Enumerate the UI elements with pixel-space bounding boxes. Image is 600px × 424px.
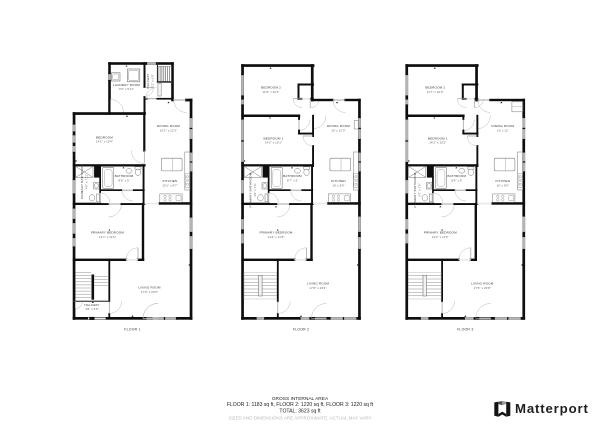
svg-text:DINING ROOM: DINING ROOM (327, 124, 350, 128)
svg-text:10'1" x 9'7": 10'1" x 9'7" (162, 184, 177, 188)
svg-text:KITCHEN: KITCHEN (163, 179, 178, 183)
svg-text:LIVING ROOM: LIVING ROOM (307, 282, 330, 286)
svg-text:Matterport: Matterport (515, 401, 589, 416)
svg-text:FLOOR 1: FLOOR 1 (124, 328, 140, 332)
svg-text:LIVING ROOM: LIVING ROOM (138, 286, 161, 290)
svg-text:HALLWAY: HALLWAY (84, 303, 99, 307)
svg-text:BATHROOM: BATHROOM (447, 174, 466, 178)
svg-text:11'9" x 10'4": 11'9" x 10'4" (263, 90, 280, 94)
svg-text:HALLWAY: HALLWAY (146, 73, 150, 88)
svg-text:BEDROOM 1: BEDROOM 1 (428, 136, 448, 140)
svg-text:10'1" x 12'3": 10'1" x 12'3" (160, 129, 177, 133)
svg-text:14'2" x 10'1": 14'2" x 10'1" (265, 141, 282, 145)
svg-text:4'9" x 7'9": 4'9" x 7'9" (253, 183, 257, 197)
svg-text:BEDROOM 2: BEDROOM 2 (261, 86, 281, 90)
svg-text:BATHROOM: BATHROOM (115, 174, 134, 178)
svg-text:PRIMARY BEDROOM: PRIMARY BEDROOM (259, 231, 292, 235)
svg-text:FLOOR 2: FLOOR 2 (293, 328, 309, 332)
svg-text:GROSS INTERNAL AREA: GROSS INTERNAL AREA (272, 396, 329, 402)
svg-text:8'6" x 5': 8'6" x 5' (451, 179, 462, 183)
svg-text:FLOOR 1: 1183 sq ft, FLOOR 2:: FLOOR 1: 1183 sq ft, FLOOR 2: 1220 sq ft… (227, 402, 374, 408)
svg-text:17'6" x 23'8": 17'6" x 23'8" (474, 286, 491, 290)
svg-text:4'7" x 7'9": 4'7" x 7'9" (417, 183, 421, 197)
svg-text:8'7" x 5': 8'7" x 5' (287, 179, 298, 183)
svg-text:17'6" x 23'4": 17'6" x 23'4" (309, 286, 326, 290)
svg-text:PRIMARY BATHROOM: PRIMARY BATHROOM (80, 164, 84, 199)
svg-text:BATHROOM: BATHROOM (283, 174, 302, 178)
svg-text:BEDROOM 1: BEDROOM 1 (264, 136, 284, 140)
svg-text:17'6" x 23'5": 17'6" x 23'5" (141, 290, 158, 294)
svg-text:KITCHEN: KITCHEN (331, 179, 346, 183)
svg-text:TOTAL: 3623 sq ft: TOTAL: 3623 sq ft (279, 409, 321, 415)
svg-text:FLOOR 3: FLOOR 3 (457, 328, 473, 332)
svg-text:10' x 9'0": 10' x 9'0" (496, 184, 509, 188)
svg-text:LAUNDRY ROOM: LAUNDRY ROOM (113, 83, 140, 87)
svg-text:14'2" x 11'5": 14'2" x 11'5" (432, 235, 449, 239)
svg-text:4'8" x 3'5": 4'8" x 3'5" (85, 307, 99, 311)
svg-text:PRIMARY BEDROOM: PRIMARY BEDROOM (424, 231, 457, 235)
svg-text:14'1" x 11'6": 14'1" x 11'6" (99, 235, 116, 239)
svg-text:BEDROOM 2: BEDROOM 2 (425, 86, 445, 90)
svg-text:BEDROOM: BEDROOM (96, 135, 113, 139)
svg-text:10' x 12'3": 10' x 12'3" (331, 129, 345, 133)
svg-text:SIZES AND DIMENSIONS ARE APPRO: SIZES AND DIMENSIONS ARE APPROXIMATE, AC… (228, 415, 371, 420)
svg-text:DINING ROOM: DINING ROOM (157, 124, 180, 128)
svg-text:8'6" x 5': 8'6" x 5' (119, 179, 130, 183)
svg-text:11'7" x 10'3": 11'7" x 10'3" (427, 90, 444, 94)
svg-text:4'9" x 7'11": 4'9" x 7'11" (85, 174, 89, 189)
svg-text:LIVING ROOM: LIVING ROOM (471, 282, 494, 286)
svg-text:PRIMARY BATHROOM: PRIMARY BATHROOM (413, 172, 417, 207)
svg-text:10' x 12': 10' x 12' (497, 129, 509, 133)
svg-text:14'1" x 10'4": 14'1" x 10'4" (96, 140, 113, 144)
svg-text:KITCHEN: KITCHEN (495, 179, 510, 183)
svg-text:14'2" x 10'2": 14'2" x 10'2" (429, 141, 446, 145)
svg-text:DINING ROOM: DINING ROOM (491, 124, 514, 128)
svg-text:3'1" x 6'9": 3'1" x 6'9" (150, 74, 154, 88)
svg-text:14'2" x 11'5": 14'2" x 11'5" (268, 235, 285, 239)
svg-text:10' x 9'6": 10' x 9'6" (332, 184, 345, 188)
svg-text:PRIMARY BATHROOM: PRIMARY BATHROOM (249, 172, 253, 207)
svg-text:4'6" x 5'11": 4'6" x 5'11" (119, 87, 134, 91)
svg-text:PRIMARY BEDROOM: PRIMARY BEDROOM (91, 231, 124, 235)
